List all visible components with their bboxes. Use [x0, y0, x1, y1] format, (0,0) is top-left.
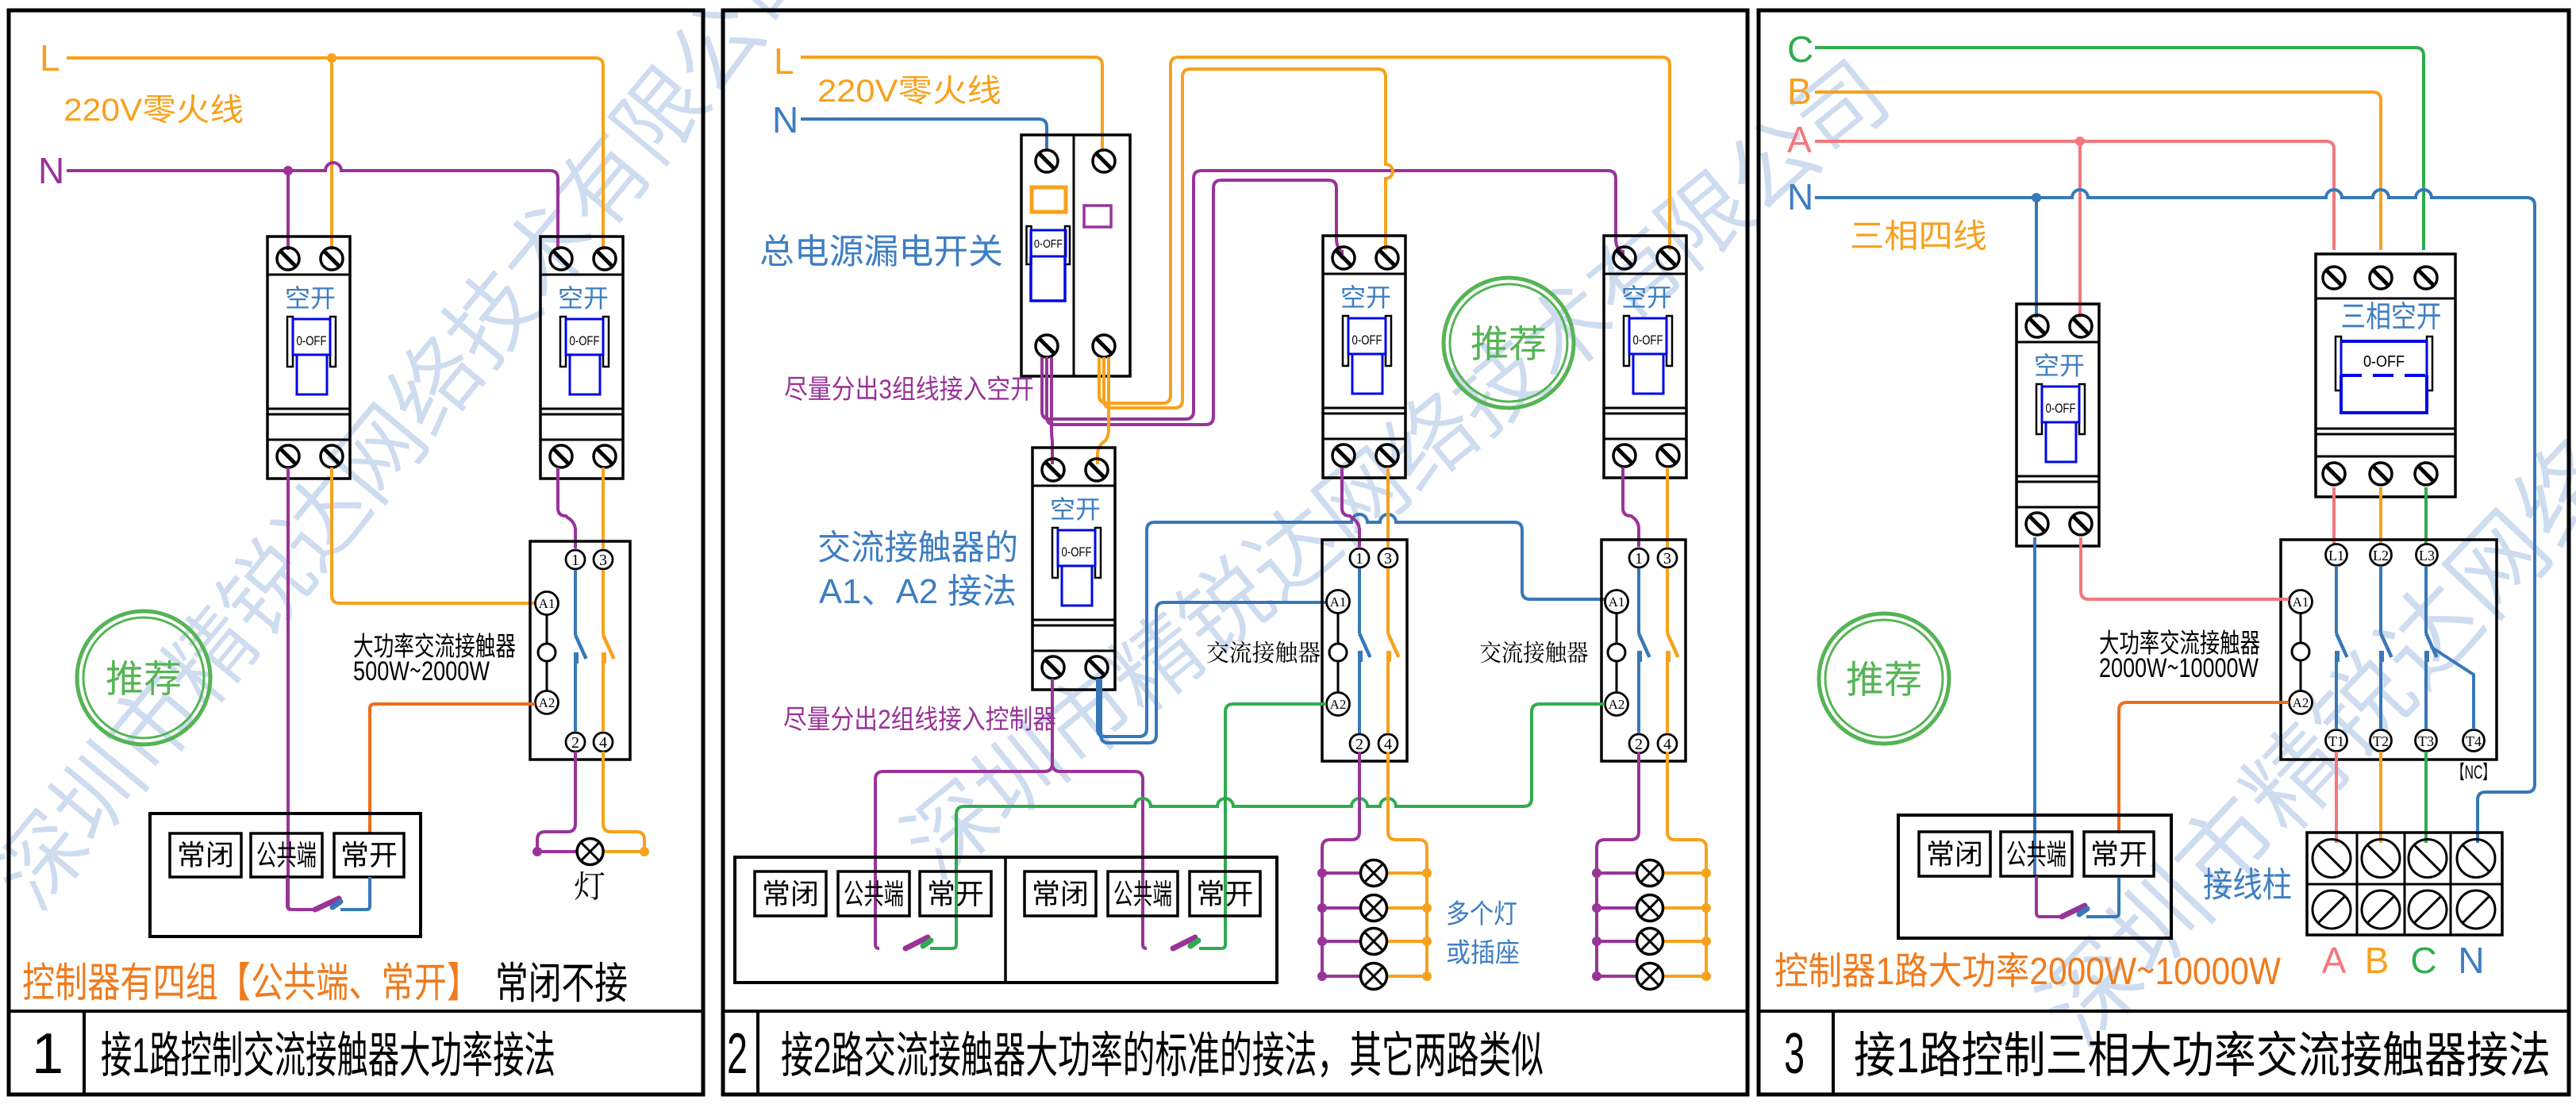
svg-text:3: 3	[599, 547, 607, 570]
svg-text:A1: A1	[1330, 590, 1347, 610]
svg-text:N: N	[772, 91, 798, 144]
svg-text:常闭不接: 常闭不接	[495, 948, 628, 1011]
svg-text:0-OFF: 0-OFF	[1062, 540, 1092, 560]
svg-text:推荐: 推荐	[106, 648, 182, 703]
svg-text:控制器1路大功率2000W~10000W: 控制器1路大功率2000W~10000W	[1774, 940, 2282, 995]
svg-text:1: 1	[571, 547, 579, 570]
svg-text:500W~2000W: 500W~2000W	[353, 649, 490, 688]
svg-text:0-OFF: 0-OFF	[2363, 348, 2405, 371]
svg-text:尽量分出2组线接入控制器: 尽量分出2组线接入控制器	[783, 698, 1056, 737]
svg-text:空开: 空开	[285, 279, 336, 315]
svg-text:三相四线: 三相四线	[1850, 210, 1987, 258]
svg-text:总电源漏电开关: 总电源漏电开关	[759, 223, 1003, 274]
svg-text:接1路控制三相大功率交流接触器接法: 接1路控制三相大功率交流接触器接法	[1854, 1015, 2551, 1087]
svg-text:4: 4	[1663, 731, 1671, 754]
svg-text:A1: A1	[1609, 590, 1625, 610]
svg-text:0-OFF: 0-OFF	[1352, 329, 1382, 348]
svg-text:220V零火线: 220V零火线	[63, 84, 244, 130]
svg-text:N: N	[38, 142, 64, 194]
svg-text:3: 3	[1384, 545, 1392, 568]
svg-text:3: 3	[1784, 1006, 1805, 1090]
svg-text:1: 1	[1355, 545, 1363, 568]
svg-text:接2路交流接触器大功率的标准的接法，其它两路类似: 接2路交流接触器大功率的标准的接法，其它两路类似	[781, 1015, 1544, 1087]
svg-text:灯: 灯	[574, 862, 606, 907]
svg-text:T1: T1	[2328, 730, 2344, 751]
svg-text:推荐: 推荐	[1471, 313, 1547, 368]
svg-text:多个灯: 多个灯	[1446, 892, 1517, 931]
svg-text:0-OFF: 0-OFF	[297, 329, 327, 349]
svg-text:公共端: 公共端	[844, 871, 904, 913]
svg-text:常开: 常开	[927, 871, 984, 913]
svg-text:T3: T3	[2418, 730, 2434, 751]
svg-text:A2: A2	[2293, 691, 2309, 711]
svg-text:A: A	[1787, 111, 1812, 163]
svg-text:空开: 空开	[2034, 346, 2085, 383]
svg-text:C: C	[2410, 932, 2436, 984]
svg-text:公共端: 公共端	[1113, 871, 1172, 913]
svg-text:2: 2	[1355, 731, 1363, 754]
svg-text:L1: L1	[2328, 544, 2344, 565]
svg-text:常开: 常开	[340, 833, 398, 874]
svg-text:3: 3	[1663, 545, 1671, 568]
svg-text:L: L	[774, 33, 794, 85]
svg-text:接1路控制交流接触器大功率接法: 接1路控制交流接触器大功率接法	[101, 1015, 556, 1087]
svg-text:公共端: 公共端	[2006, 832, 2067, 873]
svg-text:或插座: 或插座	[1446, 931, 1520, 970]
svg-text:常闭: 常闭	[762, 871, 819, 913]
svg-text:A2: A2	[539, 691, 556, 711]
svg-text:2: 2	[571, 729, 579, 752]
svg-text:1: 1	[32, 1006, 63, 1090]
svg-text:4: 4	[599, 729, 607, 752]
svg-text:4: 4	[1384, 731, 1392, 754]
svg-text:2: 2	[727, 1006, 748, 1090]
svg-text:空开: 空开	[558, 279, 609, 315]
svg-text:0-OFF: 0-OFF	[1034, 235, 1063, 252]
svg-text:控制器有四组【公共端、常开】: 控制器有四组【公共端、常开】	[22, 949, 479, 1009]
svg-text:0-OFF: 0-OFF	[2046, 397, 2076, 417]
svg-text:L2: L2	[2373, 544, 2389, 565]
svg-text:L3: L3	[2419, 544, 2435, 565]
svg-text:【NC】: 【NC】	[2452, 756, 2495, 784]
svg-text:A1: A1	[539, 592, 556, 612]
svg-text:T4: T4	[2466, 730, 2482, 751]
svg-text:N: N	[1787, 168, 1813, 221]
svg-text:常闭: 常闭	[1926, 832, 1983, 873]
svg-text:推荐: 推荐	[1846, 648, 1922, 704]
svg-text:公共端: 公共端	[256, 833, 317, 874]
svg-text:N: N	[2458, 932, 2484, 984]
svg-text:B: B	[2365, 932, 2390, 984]
svg-text:2000W~10000W: 2000W~10000W	[2099, 646, 2259, 685]
svg-text:A2: A2	[1330, 693, 1347, 713]
svg-text:A: A	[2322, 932, 2347, 984]
svg-text:0-OFF: 0-OFF	[1633, 329, 1663, 348]
svg-text:常开: 常开	[1196, 871, 1253, 913]
svg-text:空开: 空开	[1340, 278, 1391, 314]
svg-text:2: 2	[1635, 731, 1643, 754]
svg-text:接线柱: 接线柱	[2203, 856, 2292, 907]
svg-text:1: 1	[1635, 545, 1643, 568]
svg-text:220V零火线: 220V零火线	[817, 65, 1002, 111]
svg-text:A2: A2	[1609, 693, 1625, 713]
svg-text:0-OFF: 0-OFF	[570, 329, 600, 349]
svg-text:A1、A2 接法: A1、A2 接法	[819, 563, 1017, 614]
svg-text:常闭: 常闭	[1032, 871, 1089, 913]
svg-text:L: L	[40, 29, 60, 82]
svg-text:B: B	[1787, 63, 1812, 115]
svg-text:尽量分出3组线接入空开: 尽量分出3组线接入空开	[784, 367, 1034, 406]
svg-text:交流接触器: 交流接触器	[1480, 633, 1589, 668]
svg-text:空开: 空开	[1050, 490, 1101, 526]
svg-text:三相空开: 三相空开	[2341, 292, 2442, 336]
svg-text:交流接触器: 交流接触器	[1206, 633, 1321, 668]
svg-text:常开: 常开	[2090, 832, 2147, 873]
svg-text:T2: T2	[2373, 730, 2389, 751]
svg-text:空开: 空开	[1621, 278, 1672, 314]
svg-text:A1: A1	[2293, 590, 2309, 610]
svg-text:常闭: 常闭	[177, 833, 234, 874]
